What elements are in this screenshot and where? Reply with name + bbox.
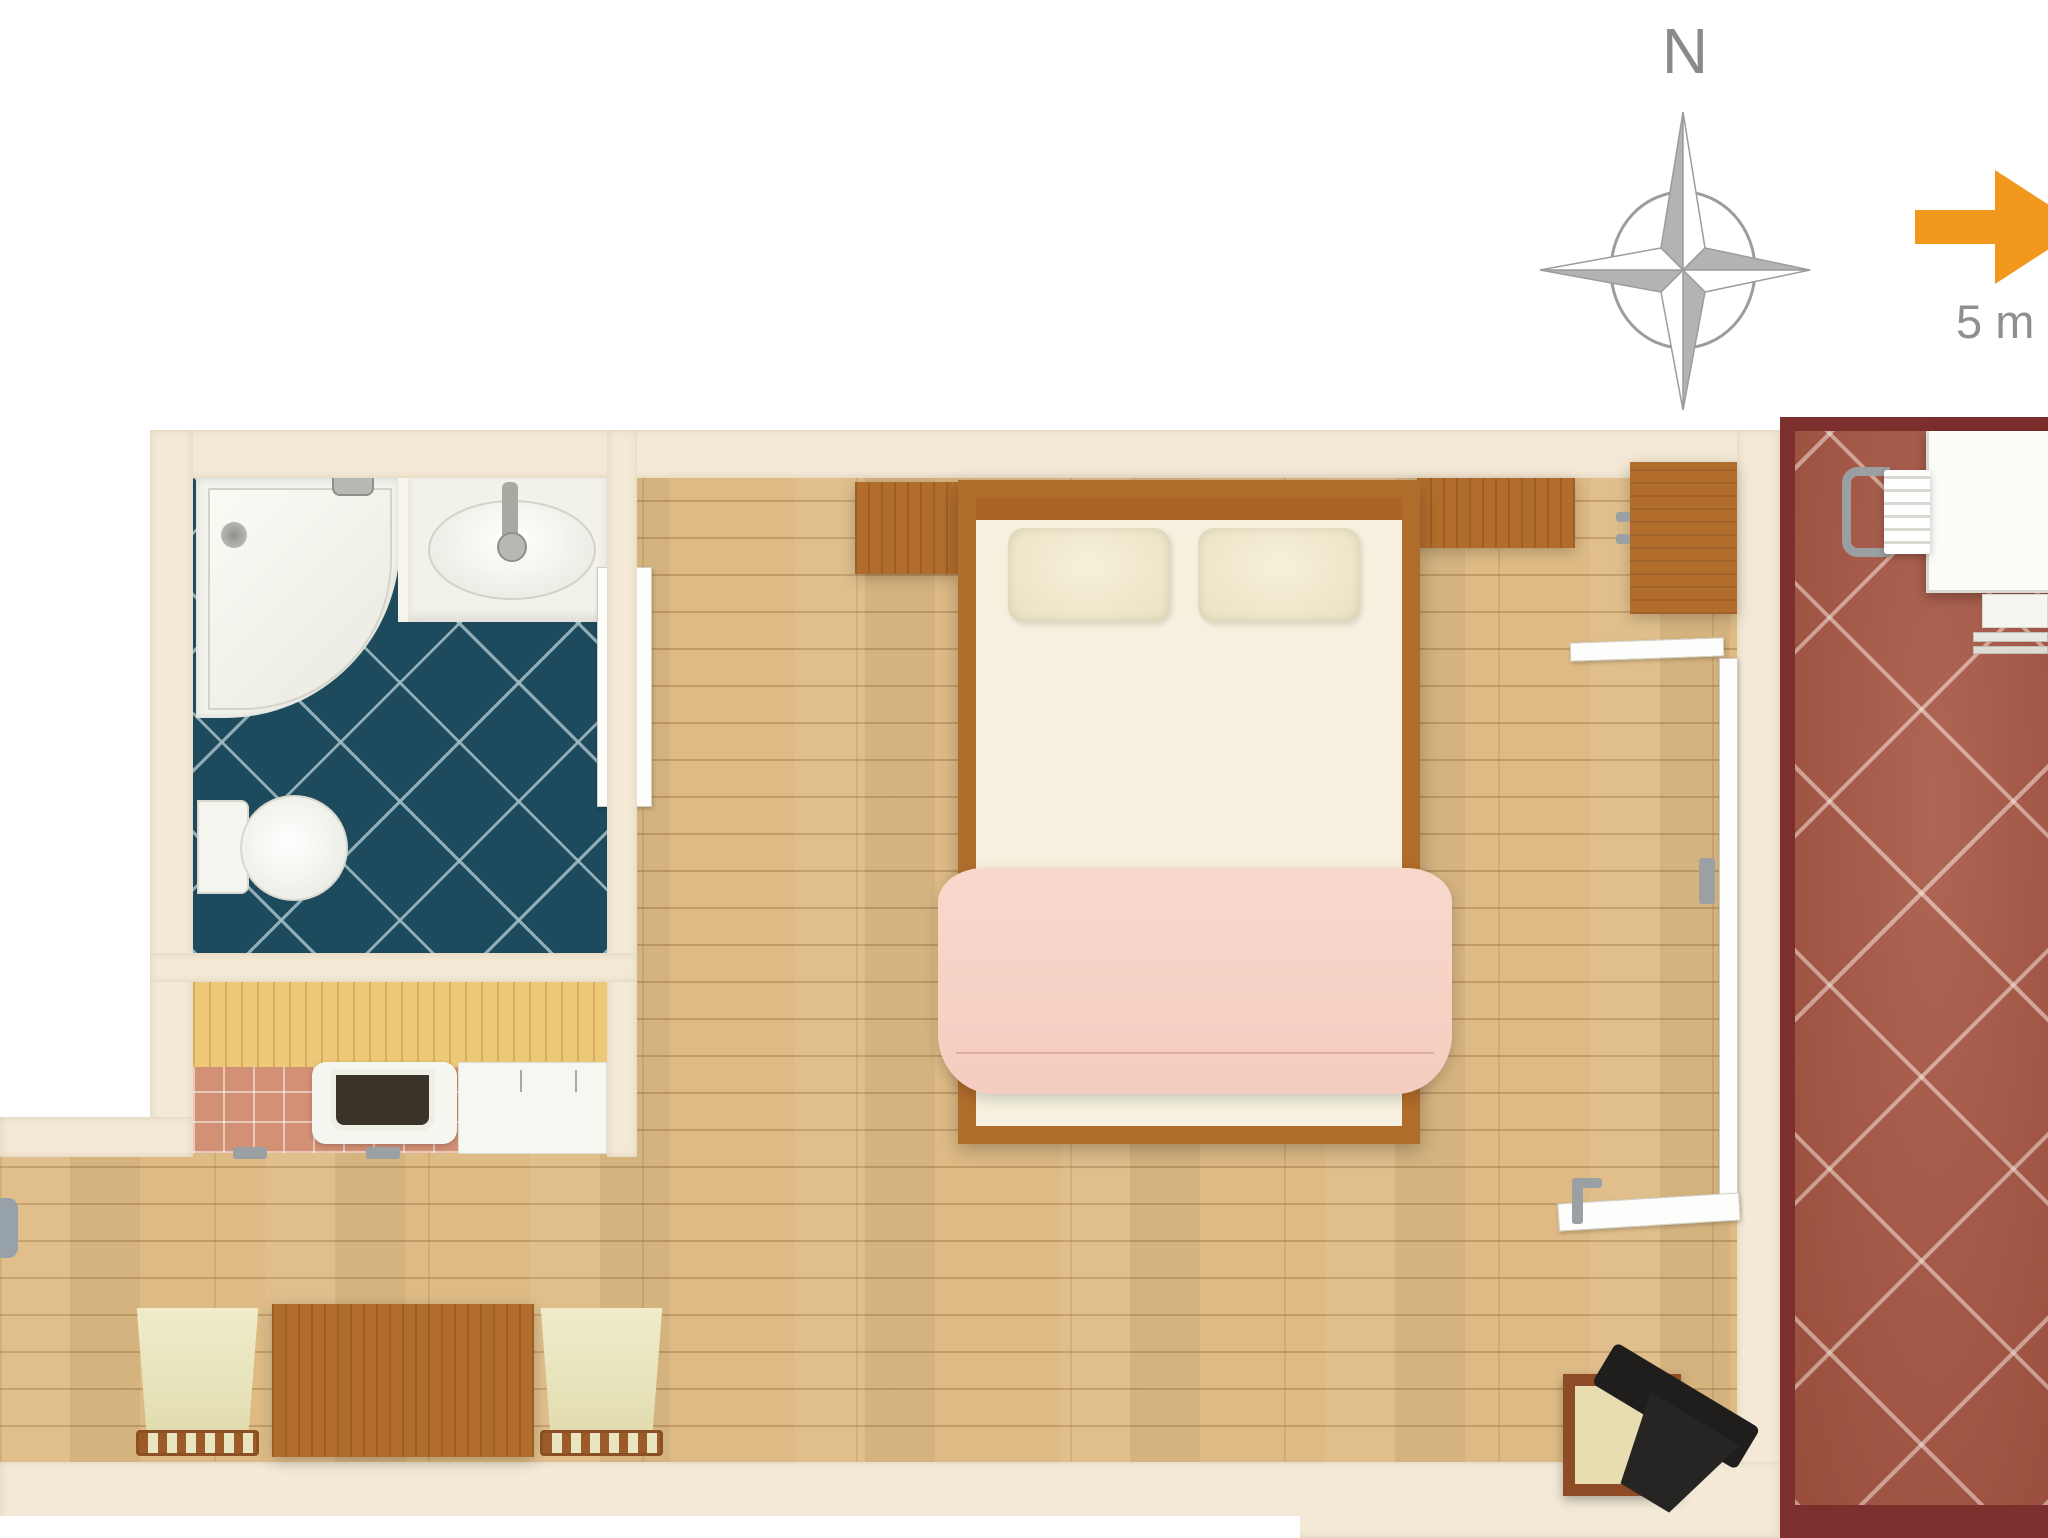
bed-headboard [976, 498, 1402, 520]
bed-blanket-seam [956, 1052, 1434, 1054]
headboard-shelf [1417, 478, 1575, 548]
scale-arrow-icon [1915, 158, 2048, 298]
toilet-bowl [240, 795, 348, 901]
kitchen-appliance [458, 1062, 607, 1154]
bed-pillow-right [1198, 528, 1360, 622]
wardrobe [1630, 462, 1737, 614]
wall-right [1737, 430, 1780, 1538]
dining-chair-left [130, 1308, 265, 1456]
kitchen-sink-basin [330, 1069, 435, 1131]
kitchen-counter [193, 982, 607, 1067]
bed-blanket [938, 868, 1452, 1094]
exterior-left [0, 418, 150, 1118]
chair-seat [130, 1308, 265, 1430]
terrace-bench [1982, 594, 2048, 628]
terrace-bench-rail [1973, 632, 2048, 642]
washbasin-faucet-knob [497, 532, 527, 562]
wall-left [150, 430, 193, 1157]
wall-bathroom-bottom [150, 953, 637, 982]
compass-rose-icon [1528, 88, 1838, 428]
floor-plan-canvas: N 5 m [0, 0, 2048, 1538]
shower-drain [221, 522, 247, 548]
chair-base [540, 1430, 663, 1456]
bed-pillow-left [1008, 528, 1170, 622]
chair-seat [534, 1308, 669, 1430]
wall-top [150, 430, 1780, 478]
wall-bathroom-right [607, 430, 637, 1157]
wardrobe-handle-top [1616, 512, 1630, 522]
kitchen-appliance-seam [520, 1070, 522, 1092]
terrace-bench-rail-2 [1973, 646, 2048, 654]
chair-base [136, 1430, 259, 1456]
exterior-bottom-strip [0, 1516, 1300, 1538]
compass-north-label: N [1655, 14, 1715, 88]
dining-table [272, 1304, 534, 1457]
terrace-door-handle-lower-2 [1572, 1178, 1602, 1188]
cropped-object-left-edge [0, 1198, 18, 1258]
terrace-chair-arm [1842, 467, 1890, 557]
bedside-cabinet [855, 482, 960, 574]
wardrobe-handle-bottom [1616, 534, 1630, 544]
kitchen-appliance-seam-2 [575, 1070, 577, 1092]
dining-chair-right [534, 1308, 669, 1456]
kitchen-cabinet-handle-left [233, 1147, 267, 1159]
terrace-table [1926, 431, 2048, 593]
kitchen-cabinet-handle-right [366, 1147, 400, 1159]
wall-step-left [0, 1117, 193, 1157]
terrace-door-handle-mid [1699, 858, 1715, 904]
terrace-door-leaf-parked [1719, 658, 1738, 1216]
scale-label: 5 m [1956, 294, 2034, 349]
terrace-chair-slats [1884, 470, 1930, 554]
